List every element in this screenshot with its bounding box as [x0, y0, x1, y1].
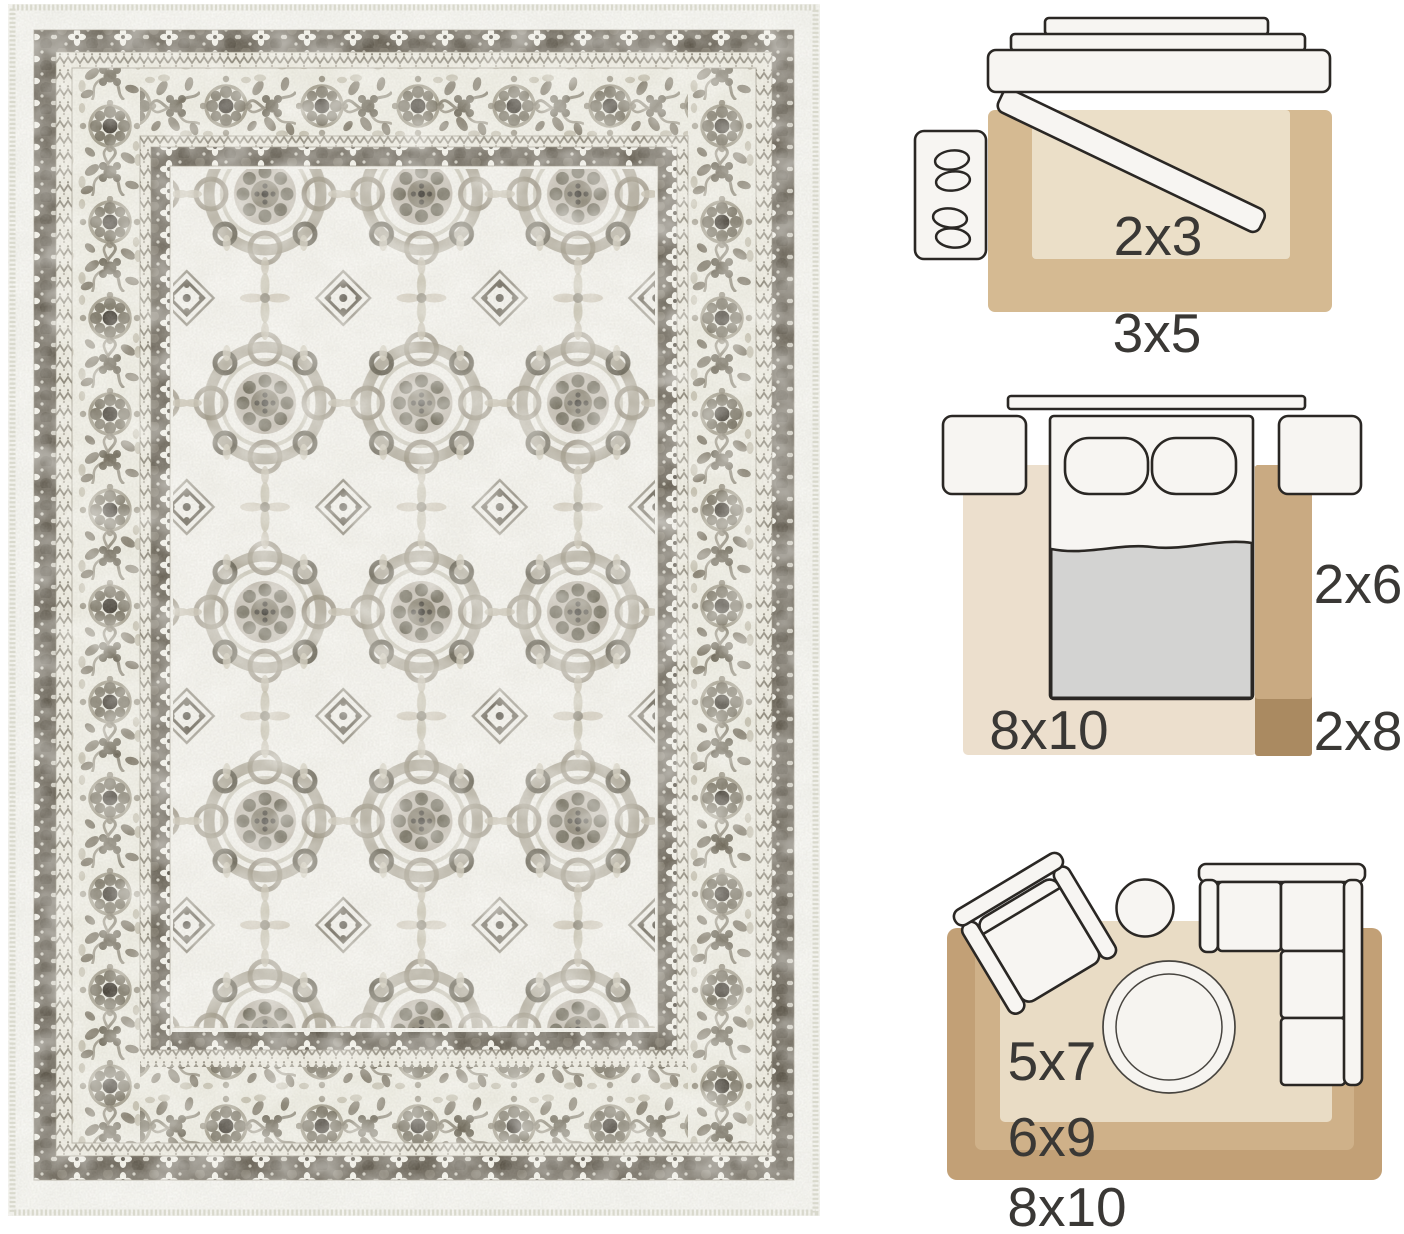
svg-text:2x8: 2x8 [1314, 700, 1403, 762]
svg-text:3x5: 3x5 [1113, 302, 1202, 364]
svg-text:8x10: 8x10 [1007, 1176, 1126, 1234]
svg-text:2x6: 2x6 [1314, 553, 1403, 615]
svg-text:8x10: 8x10 [989, 699, 1108, 761]
svg-text:6x9: 6x9 [1008, 1106, 1097, 1168]
svg-text:2x3: 2x3 [1114, 205, 1203, 267]
svg-text:5x7: 5x7 [1008, 1030, 1097, 1092]
